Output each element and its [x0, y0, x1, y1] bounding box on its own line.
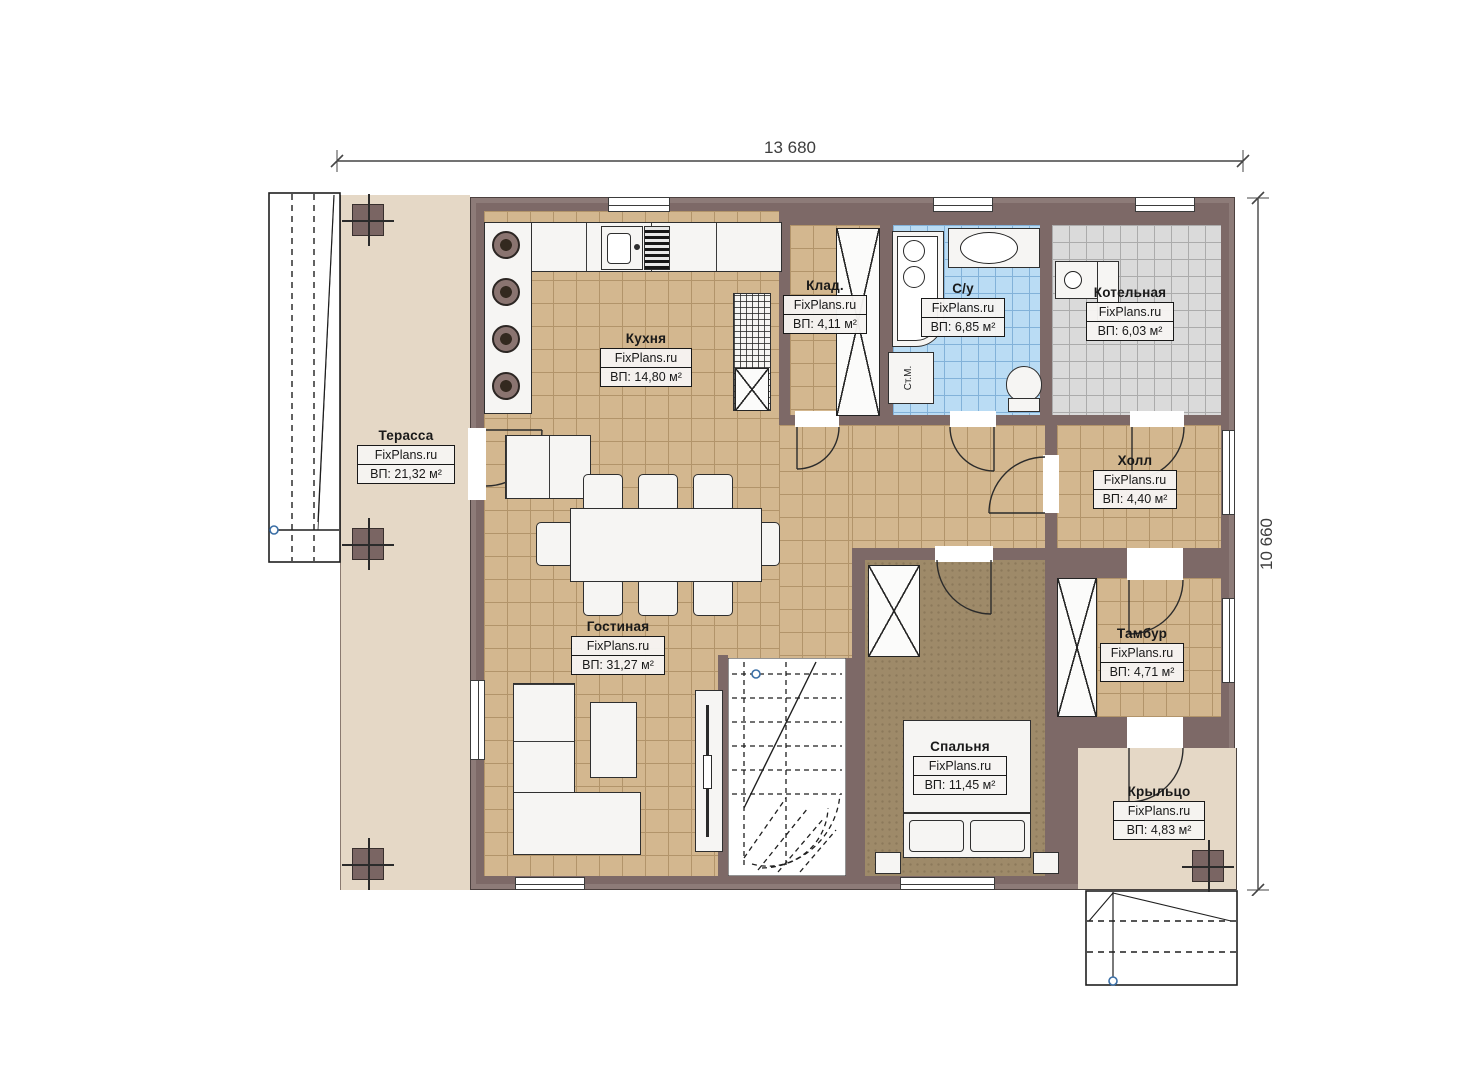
window: [515, 877, 585, 890]
nightstand: [875, 852, 901, 874]
chair: [638, 474, 678, 512]
room-brand: FixPlans.ru: [1087, 303, 1173, 321]
room-label-vestibule: Тамбур FixPlans.ru ВП: 4,71 м²: [1100, 626, 1184, 682]
toilet: [1006, 366, 1042, 402]
column-post: [352, 204, 384, 236]
room-area: ВП: 6,85 м²: [922, 317, 1004, 336]
window: [1135, 197, 1195, 212]
room-name: Кухня: [600, 331, 692, 346]
room-label-boiler: Котельная FixPlans.ru ВП: 6,03 м²: [1086, 285, 1174, 341]
nightstand: [1033, 852, 1059, 874]
door-opening-bathroom: [950, 411, 996, 427]
sofa-horizontal: [513, 792, 641, 855]
vestibule-wardrobe: [1057, 578, 1097, 717]
door-opening-boiler: [1130, 411, 1184, 427]
room-label-porch: Крыльцо FixPlans.ru ВП: 4,83 м²: [1113, 784, 1205, 840]
terrace-steps: [268, 192, 342, 564]
bed-blanket-line: [903, 812, 1031, 814]
room-info-box: FixPlans.ru ВП: 21,32 м²: [357, 445, 455, 484]
room-area: ВП: 11,45 м²: [914, 775, 1006, 794]
room-brand: FixPlans.ru: [1094, 471, 1176, 489]
room-area: ВП: 4,40 м²: [1094, 489, 1176, 508]
room-brand: FixPlans.ru: [572, 637, 664, 655]
dining-table: [570, 508, 762, 582]
dimension-right-value: 10 660: [1257, 518, 1276, 570]
room-info-box: FixPlans.ru ВП: 4,71 м²: [1100, 643, 1184, 682]
column-post: [352, 848, 384, 880]
room-name: Спальня: [913, 739, 1007, 754]
room-info-box: FixPlans.ru ВП: 6,85 м²: [921, 298, 1005, 337]
room-name: Терасса: [357, 428, 455, 443]
chair: [583, 474, 623, 512]
room-label-hall: Холл FixPlans.ru ВП: 4,40 м²: [1093, 453, 1177, 509]
room-area: ВП: 4,83 м²: [1114, 820, 1204, 839]
kitchen-faucet: [634, 244, 640, 250]
room-info-box: FixPlans.ru ВП: 4,83 м²: [1113, 801, 1205, 840]
room-name: Гостиная: [571, 619, 665, 634]
pillow: [970, 820, 1025, 852]
room-label-kitchen: Кухня FixPlans.ru ВП: 14,80 м²: [600, 331, 692, 387]
pillow: [909, 820, 964, 852]
kitchen-stove: [644, 226, 670, 270]
room-info-box: FixPlans.ru ВП: 31,27 м²: [571, 636, 665, 675]
living-floor-right: [779, 425, 852, 658]
coffee-table: [590, 702, 637, 778]
kitchen-counter-island: [505, 435, 591, 499]
door-opening-bedroom: [935, 546, 993, 562]
room-label-living: Гостиная FixPlans.ru ВП: 31,27 м²: [571, 619, 665, 675]
column-post: [352, 528, 384, 560]
window: [1222, 598, 1235, 683]
washing-machine: Ст.М.: [888, 352, 934, 404]
window: [900, 877, 995, 890]
kitchen-sink-basin: [607, 233, 631, 264]
chair: [638, 578, 678, 616]
room-area: ВП: 14,80 м²: [601, 367, 691, 386]
toilet-tank: [1008, 398, 1040, 412]
dimension-top: 13 680: [327, 136, 1253, 172]
room-info-box: FixPlans.ru ВП: 4,40 м²: [1093, 470, 1177, 509]
door-opening-storage: [795, 411, 839, 427]
room-brand: FixPlans.ru: [914, 757, 1006, 775]
room-brand: FixPlans.ru: [601, 349, 691, 367]
floor-plan: 13 680 10 660: [0, 0, 1473, 1080]
room-name: Тамбур: [1100, 626, 1184, 641]
room-label-terrace: Терасса FixPlans.ru ВП: 21,32 м²: [357, 428, 455, 484]
boiler-unit: [1064, 271, 1082, 289]
chair: [583, 578, 623, 616]
bath-faucet: [903, 240, 925, 262]
room-name: С/у: [921, 281, 1005, 296]
room-name: Клад.: [783, 278, 867, 293]
room-brand: FixPlans.ru: [1101, 644, 1183, 662]
corridor-floor: [852, 425, 1045, 548]
room-info-box: FixPlans.ru ВП: 14,80 м²: [600, 348, 692, 387]
burner: [492, 325, 520, 353]
burner: [492, 231, 520, 259]
room-area: ВП: 21,32 м²: [358, 464, 454, 483]
chair: [693, 474, 733, 512]
washing-machine-label: Ст.М.: [894, 355, 924, 401]
room-area: ВП: 4,11 м²: [784, 314, 866, 333]
room-brand: FixPlans.ru: [358, 446, 454, 464]
room-area: ВП: 4,71 м²: [1101, 662, 1183, 681]
door-opening-vestibule: [1127, 548, 1183, 580]
tv-mount: [703, 755, 712, 789]
window: [1222, 430, 1235, 515]
chair: [536, 522, 574, 566]
kitchen-appliance: [735, 368, 769, 411]
room-brand: FixPlans.ru: [784, 296, 866, 314]
porch-steps: [1085, 890, 1239, 987]
dimension-right: 10 660: [1244, 190, 1284, 896]
room-name: Котельная: [1086, 285, 1174, 300]
room-area: ВП: 31,27 м²: [572, 655, 664, 674]
bedroom-wardrobe: [868, 565, 920, 657]
door-opening-entrance: [1127, 717, 1183, 748]
dimension-top-value: 13 680: [764, 138, 816, 157]
burner: [492, 278, 520, 306]
room-label-bathroom: С/у FixPlans.ru ВП: 6,85 м²: [921, 281, 1005, 337]
staircase: [728, 658, 846, 876]
room-name: Холл: [1093, 453, 1177, 468]
room-brand: FixPlans.ru: [922, 299, 1004, 317]
room-brand: FixPlans.ru: [1114, 802, 1204, 820]
bathroom-sink: [960, 232, 1018, 264]
room-label-storage: Клад. FixPlans.ru ВП: 4,11 м²: [783, 278, 867, 334]
door-opening-terrace: [468, 428, 486, 500]
window: [608, 197, 670, 212]
room-info-box: FixPlans.ru ВП: 4,11 м²: [783, 295, 867, 334]
window: [470, 680, 485, 760]
room-info-box: FixPlans.ru ВП: 11,45 м²: [913, 756, 1007, 795]
room-info-box: FixPlans.ru ВП: 6,03 м²: [1086, 302, 1174, 341]
chair: [693, 578, 733, 616]
burner: [492, 372, 520, 400]
door-opening-hall: [1043, 455, 1059, 513]
room-name: Крыльцо: [1113, 784, 1205, 799]
room-label-bedroom: Спальня FixPlans.ru ВП: 11,45 м²: [913, 739, 1007, 795]
room-area: ВП: 6,03 м²: [1087, 321, 1173, 340]
column-post: [1192, 850, 1224, 882]
window: [933, 197, 993, 212]
